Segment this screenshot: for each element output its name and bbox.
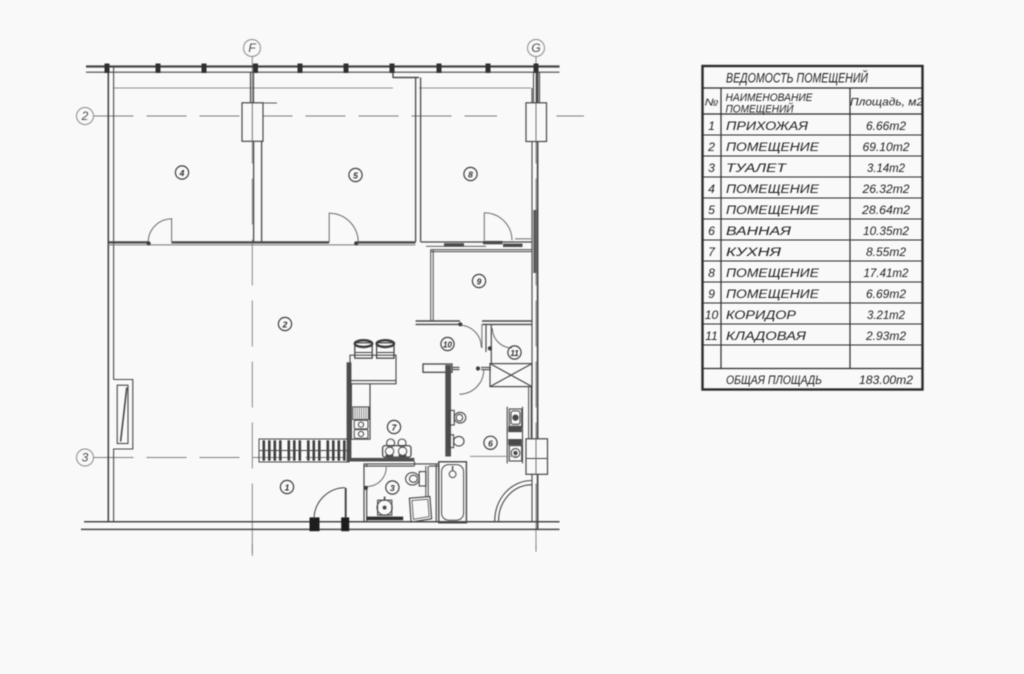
svg-text:НАИМЕНОВАНИЕ: НАИМЕНОВАНИЕ: [726, 92, 813, 104]
svg-text:26.32m2: 26.32m2: [862, 182, 910, 196]
svg-text:1: 1: [285, 483, 290, 493]
svg-text:2: 2: [707, 140, 715, 154]
svg-text:КЛАДОВАЯ: КЛАДОВАЯ: [726, 329, 807, 343]
svg-text:Площадь, м2: Площадь, м2: [850, 97, 924, 109]
svg-text:2: 2: [81, 109, 89, 123]
svg-text:8.55m2: 8.55m2: [866, 245, 906, 259]
svg-text:1: 1: [708, 119, 715, 133]
svg-text:ПОМЕЩЕНИЙ: ПОМЕЩЕНИЙ: [726, 103, 795, 116]
svg-text:3: 3: [708, 161, 715, 175]
svg-text:3.21m2: 3.21m2: [867, 308, 905, 322]
svg-text:№: №: [705, 98, 719, 109]
svg-text:5: 5: [708, 203, 715, 217]
svg-text:183.00m2: 183.00m2: [859, 373, 913, 387]
svg-text:6.66m2: 6.66m2: [866, 119, 906, 133]
svg-text:11: 11: [510, 349, 519, 358]
svg-text:КУХНЯ: КУХНЯ: [726, 245, 782, 259]
svg-text:17.41m2: 17.41m2: [864, 266, 909, 280]
svg-text:G: G: [531, 41, 540, 55]
svg-text:2.93m2: 2.93m2: [865, 329, 906, 343]
svg-text:4: 4: [708, 182, 715, 196]
svg-text:3: 3: [82, 451, 89, 465]
svg-text:3.14m2: 3.14m2: [867, 161, 905, 175]
svg-text:ОБЩАЯ ПЛОЩАДЬ: ОБЩАЯ ПЛОЩАДЬ: [726, 373, 822, 387]
svg-text:69.10m2: 69.10m2: [863, 140, 910, 154]
svg-text:5: 5: [353, 171, 358, 181]
svg-text:10.35m2: 10.35m2: [863, 224, 909, 238]
svg-text:4: 4: [179, 168, 185, 178]
svg-text:КОРИДОР: КОРИДОР: [726, 308, 797, 322]
svg-text:ВАННАЯ: ВАННАЯ: [726, 224, 792, 238]
svg-text:9: 9: [477, 277, 482, 287]
svg-text:ПРИХОЖАЯ: ПРИХОЖАЯ: [726, 119, 809, 133]
svg-text:ТУАЛЕТ: ТУАЛЕТ: [726, 161, 788, 175]
svg-text:6: 6: [708, 224, 715, 238]
svg-text:8: 8: [468, 170, 473, 180]
svg-text:ПОМЕЩЕНИЕ: ПОМЕЩЕНИЕ: [726, 287, 820, 301]
svg-text:ПОМЕЩЕНИЕ: ПОМЕЩЕНИЕ: [726, 203, 820, 217]
svg-text:10: 10: [443, 341, 452, 350]
svg-text:ПОМЕЩЕНИЕ: ПОМЕЩЕНИЕ: [726, 266, 820, 280]
svg-text:3: 3: [390, 483, 395, 493]
svg-text:ПОМЕЩЕНИЕ: ПОМЕЩЕНИЕ: [726, 140, 820, 154]
svg-text:ПОМЕЩЕНИЕ: ПОМЕЩЕНИЕ: [726, 182, 820, 196]
svg-text:8: 8: [708, 266, 715, 280]
svg-text:2: 2: [282, 320, 288, 330]
svg-text:6: 6: [488, 438, 493, 448]
svg-text:6.69m2: 6.69m2: [866, 287, 906, 301]
svg-text:F: F: [248, 41, 256, 55]
svg-text:11: 11: [705, 329, 718, 343]
svg-text:10: 10: [705, 308, 719, 322]
svg-text:9: 9: [708, 287, 715, 301]
svg-text:ВЕДОМОСТЬ ПОМЕЩЕНИЙ: ВЕДОМОСТЬ ПОМЕЩЕНИЙ: [726, 69, 869, 86]
svg-text:28.64m2: 28.64m2: [861, 203, 910, 217]
